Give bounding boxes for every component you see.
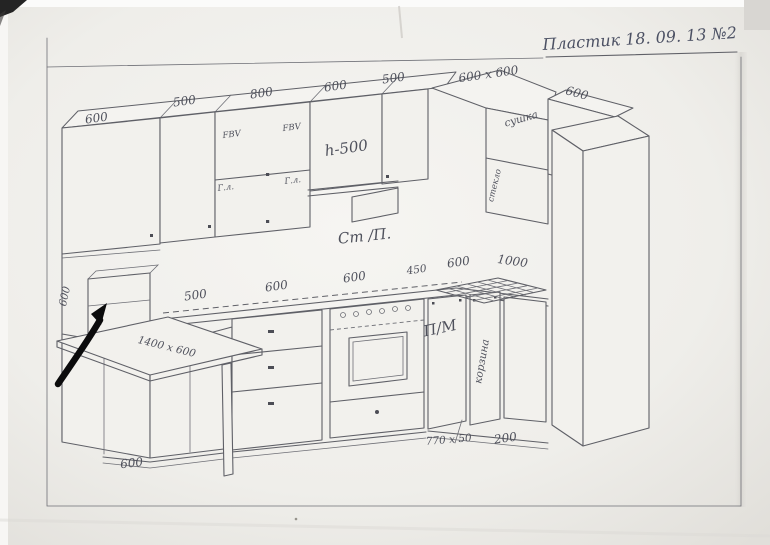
- dim-plinth-depth: 600: [119, 455, 144, 471]
- dishwasher-cabinet: [428, 295, 466, 429]
- tall-cabinet: [552, 116, 649, 446]
- kitchen-sketch-svg: Пластик 18. 09. 13 №2 600 500 800 600 50…: [0, 0, 770, 545]
- drawer-unit: [232, 310, 322, 450]
- scanned-kitchen-sketch-page: Пластик 18. 09. 13 №2 600 500 800 600 50…: [0, 0, 770, 545]
- note-lift-right: Г.л.: [283, 175, 302, 187]
- table-leg: [222, 363, 233, 476]
- stove: [330, 299, 424, 438]
- note-lift-left: Г.л.: [216, 182, 235, 194]
